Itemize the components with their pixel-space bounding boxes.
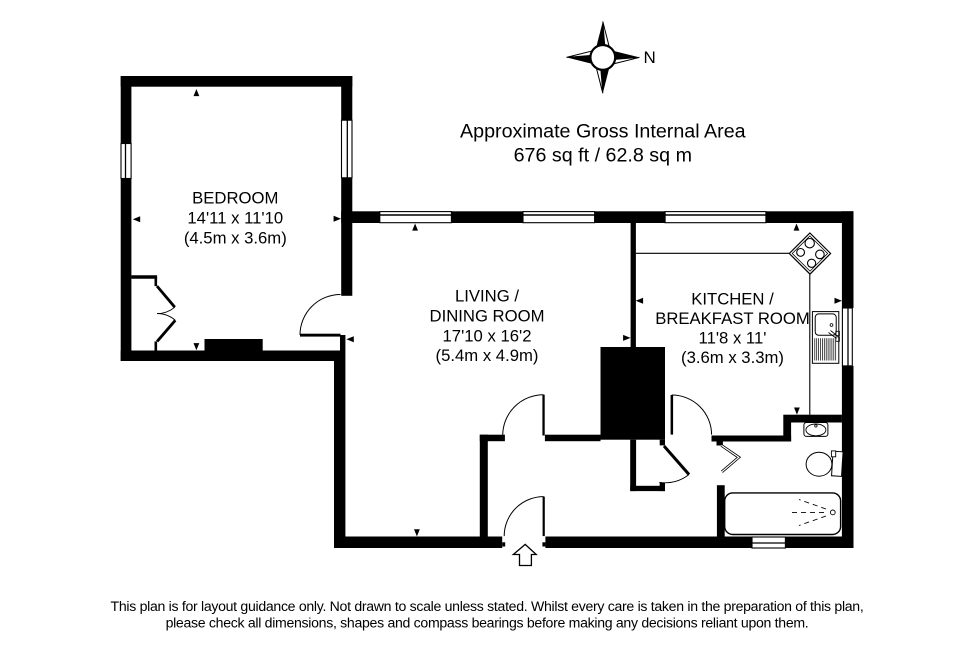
- svg-text:LIVING /: LIVING /: [455, 287, 519, 306]
- svg-text:BREAKFAST ROOM: BREAKFAST ROOM: [655, 309, 810, 328]
- svg-text:KITCHEN /: KITCHEN /: [691, 290, 774, 309]
- svg-text:11'8 x 11': 11'8 x 11': [699, 329, 767, 348]
- svg-text:BEDROOM: BEDROOM: [192, 189, 278, 208]
- svg-text:This plan is for layout guidan: This plan is for layout guidance only. N…: [111, 598, 864, 614]
- svg-text:Approximate Gross Internal Are: Approximate Gross Internal Area: [460, 121, 746, 143]
- svg-text:14'11 x 11'10: 14'11 x 11'10: [187, 209, 283, 228]
- svg-text:N: N: [644, 48, 656, 67]
- svg-text:676 sq ft / 62.8 sq m: 676 sq ft / 62.8 sq m: [514, 145, 692, 167]
- svg-text:please check all dimensions, s: please check all dimensions, shapes and …: [166, 615, 809, 631]
- svg-text:(4.5m x 3.6m): (4.5m x 3.6m): [184, 229, 287, 248]
- svg-text:17'10 x 16'2: 17'10 x 16'2: [443, 326, 532, 345]
- svg-text:DINING ROOM: DINING ROOM: [430, 307, 545, 326]
- svg-text:(3.6m x 3.3m): (3.6m x 3.3m): [681, 348, 784, 367]
- svg-text:(5.4m x 4.9m): (5.4m x 4.9m): [436, 346, 539, 365]
